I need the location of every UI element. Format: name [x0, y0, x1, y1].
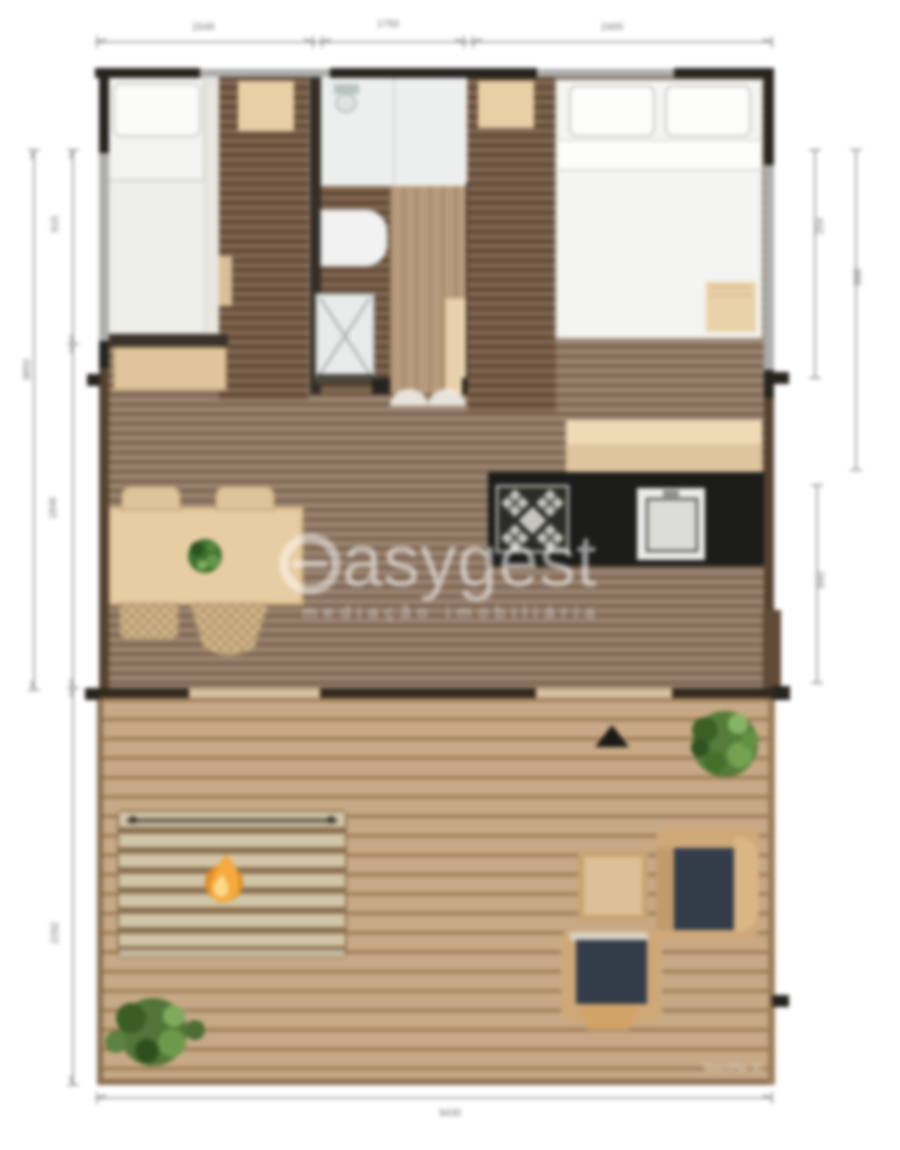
- svg-text:1750: 1750: [377, 19, 400, 30]
- svg-text:2400: 2400: [601, 22, 624, 33]
- svg-text:asygest: asygest: [342, 521, 597, 602]
- svg-text:940: 940: [816, 571, 827, 588]
- svg-text:9430: 9430: [439, 1108, 462, 1119]
- svg-text:204: 204: [815, 217, 826, 234]
- svg-text:2292: 2292: [50, 921, 61, 944]
- svg-text:915: 915: [50, 215, 61, 232]
- svg-text:888: 888: [853, 268, 864, 285]
- svg-text:1549: 1549: [192, 22, 215, 33]
- svg-text:SketchPlan 3D: SketchPlan 3D: [703, 1063, 763, 1073]
- svg-text:mediação imobiliária: mediação imobiliária: [302, 602, 602, 622]
- svg-text:1846: 1846: [48, 496, 59, 519]
- svg-text:3850: 3850: [22, 358, 33, 381]
